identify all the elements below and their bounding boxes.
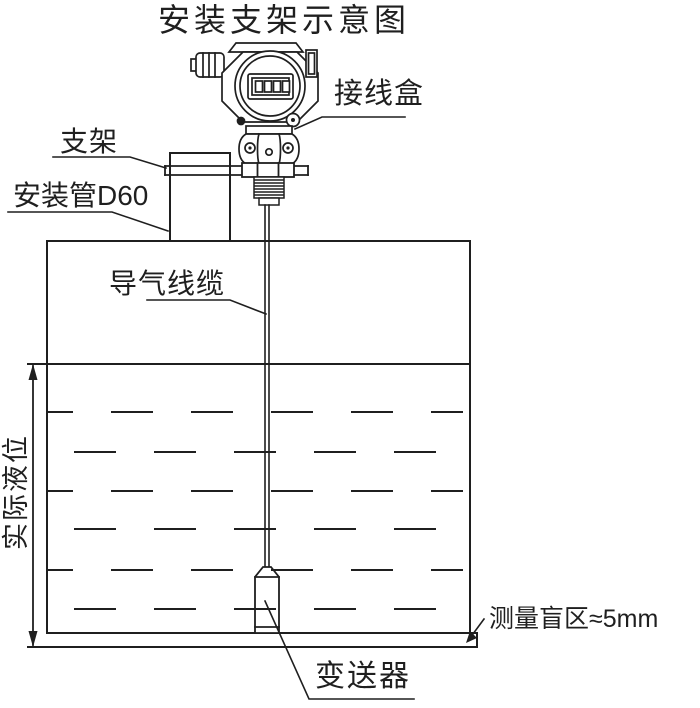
leader-bracket xyxy=(53,157,166,168)
label-bracket: 支架 xyxy=(60,128,118,156)
cable-gland-icon xyxy=(191,53,224,77)
air-cable-line xyxy=(265,205,269,567)
label-mounting-pipe: 安装管D60 xyxy=(13,182,148,210)
label-junction-box: 接线盒 xyxy=(334,80,424,109)
tank-outline xyxy=(28,241,477,647)
diagram-canvas: 安装支架示意图 接线盒 支架 安装管D60 导气线缆 实际液位 测量盲区≈5mm… xyxy=(0,0,700,708)
transmitter-head xyxy=(191,43,318,127)
label-air-cable: 导气线缆 xyxy=(109,270,225,298)
leader-mounting-pipe xyxy=(8,212,168,231)
hex-nut xyxy=(242,163,294,177)
blind-zone-arrow xyxy=(466,619,484,643)
label-actual-level: 实际液位 xyxy=(3,427,33,557)
leader-air-cable xyxy=(147,300,266,314)
process-connection xyxy=(239,126,299,164)
leader-junction-box xyxy=(295,117,405,129)
label-transmitter: 变送器 xyxy=(315,662,411,692)
label-blind-zone: 测量盲区≈5mm xyxy=(489,607,658,632)
diagram-title: 安装支架示意图 xyxy=(158,4,410,36)
display-icon xyxy=(248,74,293,99)
threaded-connector xyxy=(254,177,284,205)
